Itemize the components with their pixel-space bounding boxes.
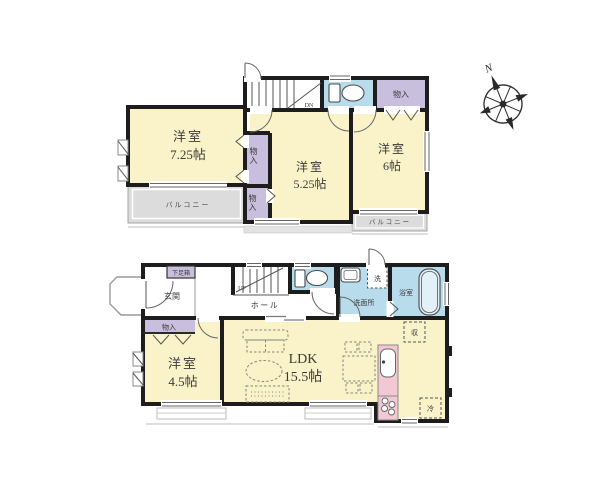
washing-machine-label: 洗 (374, 274, 381, 283)
back-door (366, 249, 385, 269)
closet-1f-label: 物入 (162, 323, 176, 332)
floor1-plan: UP 下足箱 洗 (110, 249, 452, 427)
stairs-down-label: DN (305, 103, 314, 109)
sliding-door-hall-ldk (265, 314, 306, 322)
room-7-25-floor (128, 107, 245, 185)
awning-window-2f-lower (118, 166, 128, 181)
refrigerator-label: 冷 (427, 404, 434, 413)
ldk-name: LDK (289, 352, 318, 367)
bathroom-label: 浴室 (399, 288, 413, 297)
room-4-5-size: 4.5帖 (168, 374, 197, 389)
kitchen-sink-icon (381, 349, 396, 377)
room-6-name: 洋室 (378, 141, 406, 156)
stairs-up-label: UP (238, 286, 246, 292)
bathtub-icon (419, 269, 440, 315)
washroom-label: 洗面所 (354, 298, 375, 307)
compass-north-label: N (482, 62, 495, 76)
room-4-5-name: 洋室 (168, 356, 198, 371)
kitchen-counter (378, 345, 398, 420)
storage-box: 収 (404, 322, 425, 342)
compass: N (463, 53, 538, 139)
hall-label: ホール (251, 301, 280, 310)
toilet-icon-2f (329, 84, 364, 102)
awning-window-1f-lower (133, 372, 143, 386)
ldk-size: 15.5帖 (284, 369, 323, 385)
closet-right-label: 物入 (393, 89, 409, 99)
staircase-1f: UP (236, 267, 283, 293)
refrigerator-box: 冷 (420, 398, 441, 418)
floor-plan-page: DN (0, 0, 600, 504)
awning-window-2f-upper (118, 140, 128, 155)
balcony-right-label: バルコニー (369, 218, 411, 226)
closet-upper-label: 物入 (249, 146, 258, 165)
washbasin-icon (341, 268, 360, 282)
floor2-plan: DN (118, 63, 431, 234)
staircase-2f: DN (244, 63, 321, 109)
room-7-25-name: 洋室 (173, 129, 203, 144)
toilet-icon-1f (295, 270, 328, 287)
room-6-size: 6帖 (383, 158, 401, 173)
closet-lower-label: 物入 (248, 193, 257, 212)
shoe-cabinet: 下足箱 (167, 266, 195, 278)
room-5-25-name: 洋室 (296, 159, 324, 174)
shoe-cabinet-label: 下足箱 (172, 269, 190, 277)
washing-machine-icon: 洗 (368, 268, 388, 289)
room-5-25-size: 5.25帖 (293, 176, 326, 191)
awning-window-1f-upper (133, 352, 143, 366)
entrance-porch (110, 277, 143, 315)
room-7-25-size: 7.25帖 (170, 147, 206, 162)
balcony-left-label: バルコニー (166, 201, 211, 209)
entrance-label: 玄関 (164, 291, 180, 301)
stairs-top-door-gap (244, 74, 261, 82)
floor-plan-drawing: DN (0, 0, 600, 504)
storage-label: 収 (411, 329, 418, 337)
